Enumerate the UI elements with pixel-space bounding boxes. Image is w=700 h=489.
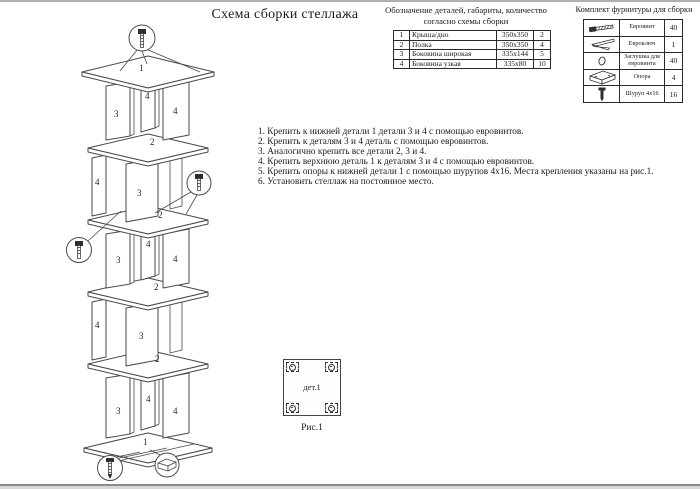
hexkey-icon	[588, 38, 616, 51]
part-number-label: 4	[95, 320, 100, 330]
part-name: Полка	[410, 40, 497, 50]
hardware-qty: 40	[665, 20, 683, 37]
part-number-label: 2	[154, 282, 159, 292]
part-number-label: 3	[137, 188, 142, 198]
hardware-qty: 4	[665, 69, 683, 86]
part-num: 3	[394, 50, 410, 60]
support-callout-bottom	[155, 453, 179, 477]
screw-icon	[596, 87, 608, 102]
hardware-qty: 1	[665, 36, 683, 53]
hardware-table: Евровинт 40 Евроключ 1 Заглушка для евро…	[583, 19, 683, 103]
table-row: Заглушка для евровинта 40	[584, 53, 683, 70]
hardware-name: Евроключ	[620, 36, 665, 53]
part-number-label: 1	[139, 63, 144, 73]
parts-table-title: Обозначение деталей, габариты, количеств…	[383, 5, 549, 27]
euroscrew-icon	[588, 22, 616, 34]
corner-bracket	[325, 403, 338, 413]
euroscrew-callout-right	[187, 171, 211, 195]
assembly-instruction-sheet: 1 2 2 2 2 1 3 4 4 4 3 3 4 4 4 3 3 4 4 Сх…	[0, 0, 700, 489]
part-number-label: 3	[114, 109, 119, 119]
corner-bracket	[325, 362, 338, 372]
hardware-qty: 16	[665, 86, 683, 103]
part-num: 1	[394, 31, 410, 41]
leader-line	[186, 195, 197, 214]
part-number-label: 4	[145, 91, 150, 101]
part-number-label: 3	[116, 406, 121, 416]
screw-callout-bottom	[98, 456, 123, 481]
table-row: Шуруп 4х16 16	[584, 86, 683, 103]
part-number-label: 1	[143, 437, 148, 447]
part-qty: 10	[534, 59, 551, 69]
hardware-name: Шуруп 4х16	[620, 86, 665, 103]
table-row: 1 Крыша/дно 350х350 2	[394, 31, 551, 41]
hardware-name: Евровинт	[620, 20, 665, 37]
page-bottom-edge	[0, 484, 700, 489]
top-cap-slab	[82, 56, 214, 92]
euroscrew-callout-left	[67, 238, 92, 263]
support-icon	[587, 70, 617, 85]
table-row: Евровинт 40	[584, 20, 683, 37]
part-size: 335х80	[497, 59, 534, 69]
table-row: 3 Боковина широкая 335х144 5	[394, 50, 551, 60]
table-row: 2 Полка 350х350 4	[394, 40, 551, 50]
part-size: 350х350	[497, 31, 534, 41]
corner-bracket	[286, 403, 299, 413]
page-title: Схема сборки стеллажа	[160, 7, 410, 23]
part-number-label: 4	[146, 239, 151, 249]
shelf-assembly-diagram: 1 2 2 2 2 1 3 4 4 4 3 3 4 4 4 3 3 4 4	[0, 2, 250, 489]
figure1-part-label: дет.1	[284, 382, 340, 392]
part-number-label: 4	[173, 254, 178, 264]
parts-table: 1 Крыша/дно 350х350 2 2 Полка 350х350 4 …	[393, 30, 551, 69]
table-row: Опора 4	[584, 69, 683, 86]
corner-bracket	[286, 362, 299, 372]
part-number-label: 4	[146, 394, 151, 404]
part-number-label: 2	[155, 354, 160, 364]
assembly-instructions: 1. Крепить к нижней детали 1 детали 3 и …	[258, 128, 678, 187]
part-number-label: 4	[173, 406, 178, 416]
part-num: 2	[394, 40, 410, 50]
hardware-table-title: Комплект фурнитуры для сборки	[570, 5, 698, 14]
part-number-label: 4	[173, 106, 178, 116]
part-size: 350х350	[497, 40, 534, 50]
instruction-line: 6. Установить стеллаж на постоянное мест…	[258, 178, 678, 188]
figure1-caption: Рис.1	[283, 423, 341, 433]
part-number-label: 4	[95, 177, 100, 187]
euroscrew-callout-top	[129, 25, 155, 51]
part-number-label: 3	[139, 331, 144, 341]
hardware-name: Опора	[620, 69, 665, 86]
screw-hole-icon	[328, 364, 335, 371]
screw-hole-icon	[289, 405, 296, 412]
part-size: 335х144	[497, 50, 534, 60]
hardware-name: Заглушка для евровинта	[620, 53, 665, 70]
plug-icon	[588, 55, 616, 67]
parts-table-title-line2: согласно схемы сборки	[383, 16, 549, 27]
part-qty: 4	[534, 40, 551, 50]
table-row: 4 Боковина узкая 335х80 10	[394, 59, 551, 69]
hardware-qty: 40	[665, 53, 683, 70]
parts-table-title-line1: Обозначение деталей, габариты, количеств…	[383, 5, 549, 16]
table-row: Евроключ 1	[584, 36, 683, 53]
screw-hole-icon	[289, 364, 296, 371]
part-name: Боковина узкая	[410, 59, 497, 69]
part-number-label: 3	[116, 255, 121, 265]
part-name: Крыша/дно	[410, 31, 497, 41]
part-number-label: 2	[158, 210, 163, 220]
part-qty: 2	[534, 31, 551, 41]
part-qty: 5	[534, 50, 551, 60]
part-num: 4	[394, 59, 410, 69]
screw-hole-icon	[328, 405, 335, 412]
figure1-box: дет.1	[283, 359, 341, 416]
part-number-label: 2	[150, 137, 155, 147]
part-name: Боковина широкая	[410, 50, 497, 60]
